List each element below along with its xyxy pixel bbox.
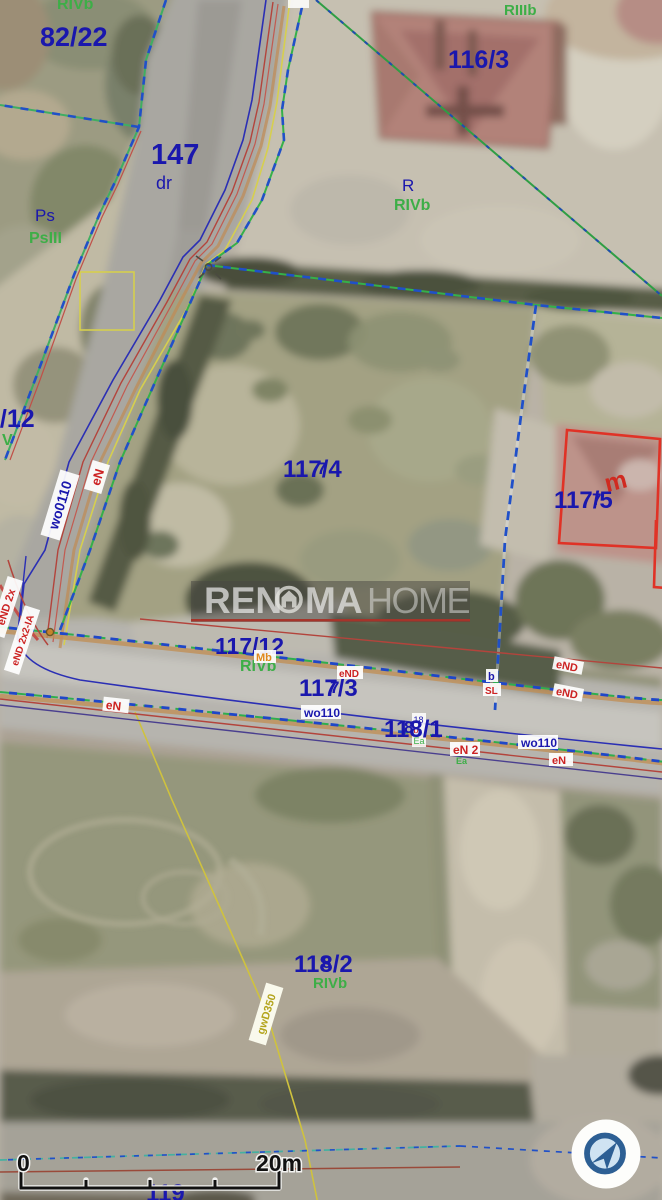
svg-text:8: 8 [404, 718, 413, 737]
svg-text:b: b [488, 671, 495, 683]
svg-text:82/22: 82/22 [40, 22, 108, 52]
svg-text:R: R [402, 176, 414, 195]
svg-text:HOME: HOME [367, 580, 469, 621]
svg-text:117/5: 117/5 [554, 487, 613, 514]
svg-text:eN 2: eN 2 [453, 743, 479, 757]
svg-text:7: 7 [317, 459, 326, 478]
svg-text:RIIIb: RIIIb [504, 2, 537, 19]
svg-text:7: 7 [330, 678, 339, 697]
svg-text:20m: 20m [256, 1150, 302, 1176]
svg-text:Mb: Mb [256, 652, 272, 664]
svg-text:wo110: wo110 [303, 706, 340, 720]
svg-text:8: 8 [322, 953, 331, 972]
svg-text:0: 0 [17, 1150, 30, 1176]
svg-text:wo110: wo110 [520, 736, 557, 750]
svg-text:eND: eND [339, 669, 359, 680]
svg-text:SL: SL [485, 686, 498, 697]
svg-text:eN: eN [105, 698, 122, 714]
svg-text:eN: eN [552, 755, 566, 767]
svg-text:2/12: 2/12 [0, 405, 35, 433]
svg-text:REN: REN [204, 580, 282, 621]
svg-text:RIVb: RIVb [394, 197, 431, 214]
svg-text:PsIII: PsIII [29, 230, 62, 247]
svg-text:Ea: Ea [456, 756, 468, 766]
svg-text:dr: dr [156, 173, 172, 193]
svg-text:117/4: 117/4 [283, 456, 342, 483]
svg-text:RIVb: RIVb [57, 0, 94, 13]
svg-text:RIVb: RIVb [313, 975, 347, 992]
svg-text:V: V [2, 432, 13, 449]
svg-text:7: 7 [592, 490, 601, 509]
svg-text:147: 147 [151, 139, 199, 171]
svg-text:Ps: Ps [35, 206, 55, 225]
svg-text:MA: MA [305, 580, 363, 621]
svg-text:116/3: 116/3 [448, 46, 509, 74]
